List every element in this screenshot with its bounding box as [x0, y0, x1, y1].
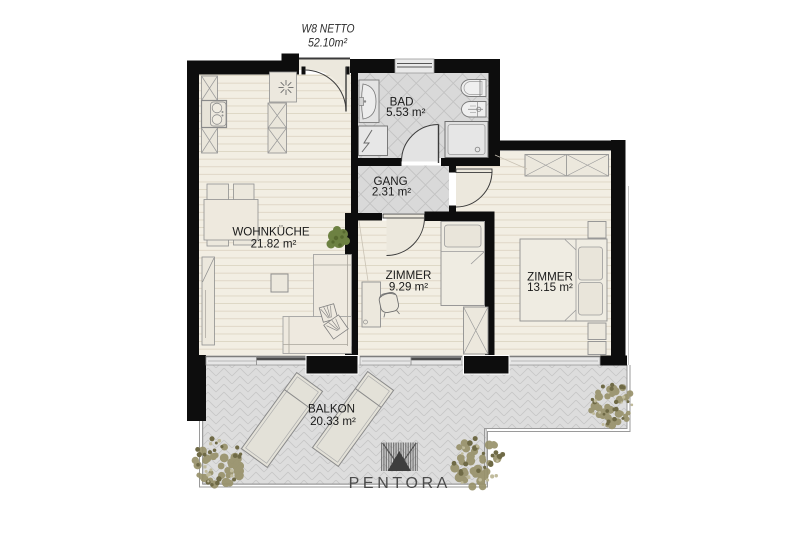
svg-text:52.10m²: 52.10m² — [308, 36, 348, 50]
svg-text:9.29 m²: 9.29 m² — [389, 280, 428, 293]
svg-text:PENTORA: PENTORA — [349, 475, 451, 492]
svg-text:20.33 m²: 20.33 m² — [310, 415, 356, 428]
svg-text:W8 NETTO: W8 NETTO — [302, 22, 355, 36]
svg-text:2.31 m²: 2.31 m² — [372, 185, 411, 198]
svg-text:5.53 m²: 5.53 m² — [386, 106, 425, 119]
svg-text:BALKON: BALKON — [308, 402, 355, 415]
svg-text:13.15 m²: 13.15 m² — [527, 281, 573, 294]
svg-text:WOHNKÜCHE: WOHNKÜCHE — [232, 226, 310, 239]
svg-text:21.82 m²: 21.82 m² — [251, 238, 297, 251]
